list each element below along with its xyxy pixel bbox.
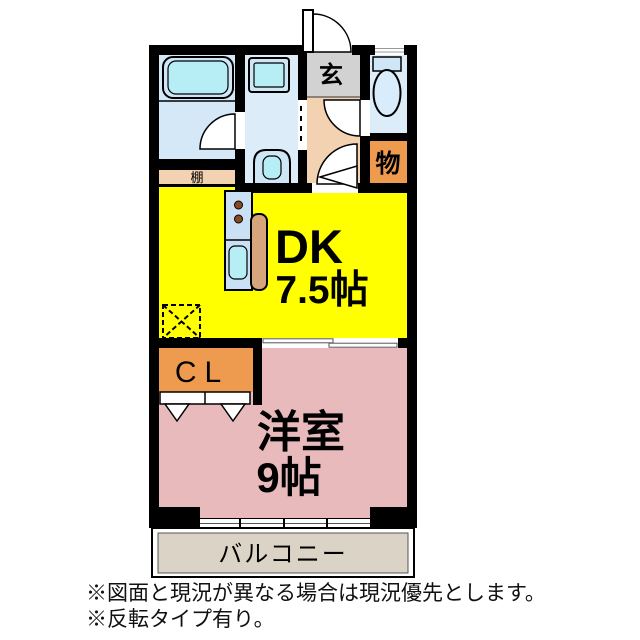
toilet-bowl-icon [374,70,401,116]
balcony-window-tick [326,519,328,528]
sliding-door-dash [300,136,302,141]
entrance-door-leaf [303,10,313,52]
closet-label: CL [175,356,229,389]
balcony-window-tick [239,519,241,528]
sliding-door-dash [300,106,302,111]
floorplan-page: 棚 玄 物 DK 7.5帖 CL 洋室 9帖 バルコニー ※図面と現況が異なる場… [0,0,640,640]
sliding-door-panel [263,339,333,343]
wall-closet-right [253,348,262,405]
western-room-size-label: 9帖 [256,454,321,501]
washroom-sliding-door [298,100,307,150]
storage-label: 物 [375,150,400,178]
stove-burner-icon [235,215,243,223]
sliding-door-dash [300,116,302,121]
bathtub-inner [168,61,228,94]
sliding-door-panel [329,343,397,347]
balcony-window-tick [283,519,285,528]
balcony-label: バルコニー [218,541,348,568]
toilet-tank-icon [373,57,401,71]
wall-segment [352,45,360,55]
shelf-label: 棚 [190,170,203,185]
toilet-doorway-gap [360,100,370,136]
washing-machine-inner [254,63,284,87]
stove-burner-icon [235,201,243,209]
wall-corner-left [157,507,200,528]
washbasin-bowl [263,156,281,179]
disclaimer-notes: ※図面と現況が異なる場合は現況優先とします。 ※反転タイプ有り。 [86,581,626,633]
disclaimer-line-2: ※反転タイプ有り。 [86,607,626,633]
wall-bathroom-bottom [149,159,245,170]
bathroom-doorway-gap [235,112,245,149]
entrance-label: 玄 [319,61,343,89]
disclaimer-line-1: ※図面と現況が異なる場合は現況優先とします。 [86,581,626,607]
dk-label: DK [275,220,343,273]
sliding-door-dash [300,126,302,131]
kitchen-sink-icon [229,246,247,279]
western-room-label: 洋室 [257,407,345,457]
floorplan-drawing: 棚 玄 物 DK 7.5帖 CL 洋室 9帖 バルコニー [0,0,640,640]
entrance-door-arc [313,14,351,52]
kitchen-counter [251,214,267,290]
toilet-window [375,45,404,55]
wall-corner-right [370,507,412,528]
dk-size-label: 7.5帖 [275,269,368,312]
